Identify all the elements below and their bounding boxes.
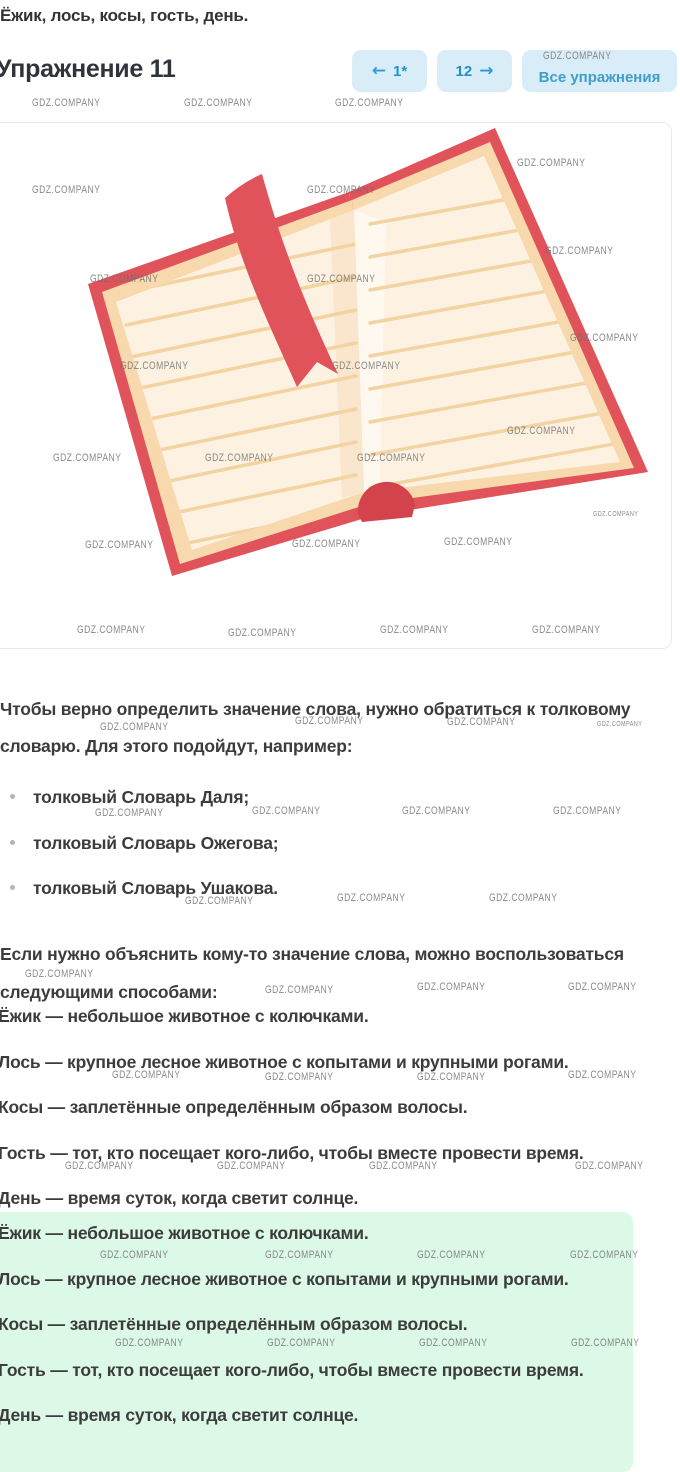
answer-definition-line: Лось — крупное лесное животное с копытам… <box>0 1268 633 1290</box>
dictionary-list-item: толковый Словарь Даля; <box>0 786 520 808</box>
watermark: GDZ.COMPANY <box>335 97 403 109</box>
intro-paragraph: Чтобы верно определить значение слова, н… <box>0 691 645 765</box>
next-exercise-number: 12 <box>456 63 473 80</box>
dictionary-name: толковый Словарь Ожегова; <box>33 833 278 853</box>
prev-exercise-button[interactable]: ← 1* <box>352 50 427 92</box>
exercise-nav: ← 1* 12 → Все упражнения <box>352 50 677 92</box>
watermark: GDZ.COMPANY <box>553 805 621 817</box>
definition-line: День — время суток, когда светит солнце. <box>0 1187 584 1209</box>
definition-line: Косы — заплетённые определённым образом … <box>0 1096 584 1118</box>
watermark: GDZ.COMPANY <box>32 97 100 109</box>
arrow-left-icon: ← <box>372 63 386 80</box>
definition-line: Гость — тот, кто посещает кого-либо, что… <box>0 1142 584 1164</box>
definition-line: Ёжик — небольшое животное с колючками. <box>0 1005 584 1027</box>
open-book <box>88 128 648 576</box>
answer-definition-line: Ёжик — небольшое животное с колючками. <box>0 1222 633 1244</box>
bullet-icon <box>10 885 15 890</box>
watermark: GDZ.COMPANY <box>184 97 252 109</box>
all-exercises-button[interactable]: Все упражнения <box>522 50 677 92</box>
dictionary-list-item: толковый Словарь Ушакова. <box>0 877 520 899</box>
next-exercise-button[interactable]: 12 → <box>437 50 512 92</box>
watermark: GDZ.COMPANY <box>575 1160 643 1172</box>
answer-definition-line: День — время суток, когда светит солнце. <box>0 1404 633 1426</box>
answer-block: Ёжик — небольшое животное с колючками.Ло… <box>0 1212 633 1472</box>
bullet-icon <box>10 794 15 799</box>
bullet-icon <box>10 840 15 845</box>
dictionary-list: толковый Словарь Даля; толковый Словарь … <box>0 786 520 923</box>
dictionary-name: толковый Словарь Даля; <box>33 787 249 807</box>
answer-definition-line: Косы — заплетённые определённым образом … <box>0 1313 633 1335</box>
open-book-illustration <box>0 124 668 649</box>
answer-definitions-section: Ёжик — небольшое животное с колючками.Ло… <box>0 1222 633 1426</box>
prev-exercise-number: 1* <box>393 63 407 80</box>
arrow-right-icon: → <box>479 63 493 80</box>
exercise-illustration-block <box>0 122 672 649</box>
explain-paragraph: Если нужно объяснить кому-то значение сл… <box>0 935 658 1011</box>
answer-definition-line: Гость — тот, кто посещает кого-либо, что… <box>0 1359 633 1381</box>
all-exercises-label: Все упражнения <box>539 69 661 86</box>
definitions-section: Ёжик — небольшое животное с колючками.Ло… <box>0 1005 584 1233</box>
answer-word-list: Ёжик, лось, косы, гость, день. <box>0 6 248 26</box>
exercise-title: Упражнение 11 <box>0 54 175 84</box>
definition-line: Лось — крупное лесное животное с копытам… <box>0 1051 584 1073</box>
dictionary-name: толковый Словарь Ушакова. <box>33 878 278 898</box>
dictionary-list-item: толковый Словарь Ожегова; <box>0 832 520 854</box>
